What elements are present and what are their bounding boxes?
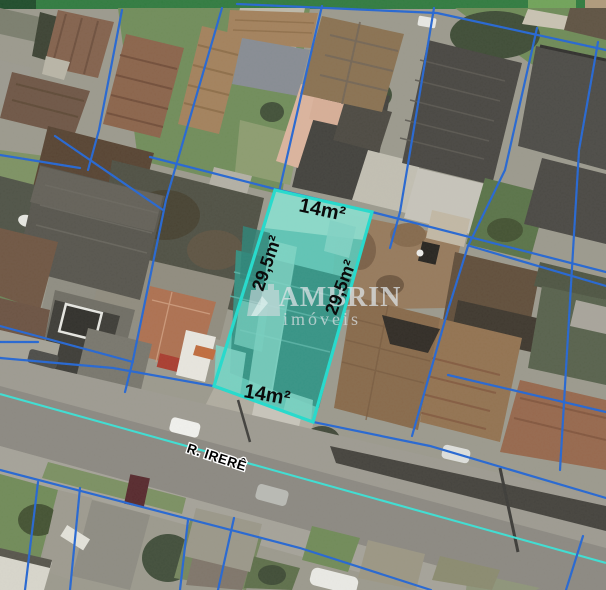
svg-text:imóveis: imóveis [283, 309, 361, 329]
